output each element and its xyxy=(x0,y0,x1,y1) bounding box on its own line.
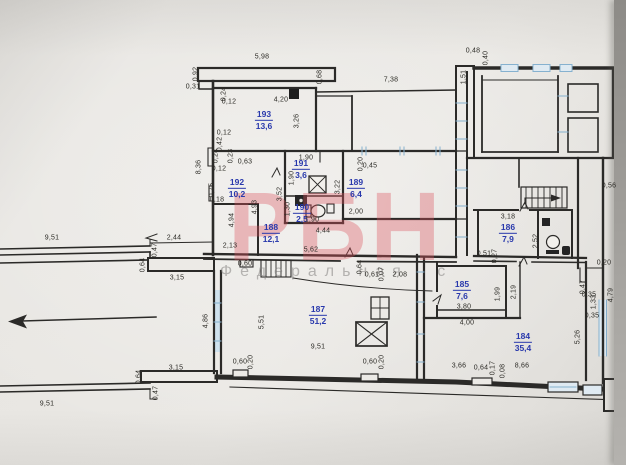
room-label-193: 19313,6 xyxy=(255,109,273,131)
dimension-label: 0,47 xyxy=(152,243,159,257)
dimension-label: 0,61 xyxy=(365,272,379,279)
dimension-label: 0,92 xyxy=(193,67,200,81)
dimension-label: 0,27 xyxy=(492,249,499,263)
dimension-label: 0,48 xyxy=(466,48,480,55)
room-label-185: 1857,6 xyxy=(453,279,471,301)
dimension-label: 4,94 xyxy=(229,213,236,227)
dimension-label: 5,98 xyxy=(255,54,269,61)
dimension-label: 0,20 xyxy=(379,355,386,369)
dimension-label: 0,17 xyxy=(490,361,497,375)
dimension-label: 5,26 xyxy=(575,330,582,344)
dimension-label: 1,30 xyxy=(285,202,292,216)
dimension-label: 0,60 xyxy=(238,261,252,268)
dimension-label: 0,31 xyxy=(186,84,200,91)
dimension-label: 1,90 xyxy=(289,171,296,185)
dimension-label: 0,45 xyxy=(363,163,377,170)
dimension-label: 9,51 xyxy=(311,344,325,351)
dimension-label: 3,22 xyxy=(335,180,342,194)
dimension-label: 0,47 xyxy=(153,386,160,400)
dimension-label: 4,00 xyxy=(460,320,474,327)
room-label-184: 18435,4 xyxy=(514,331,532,353)
dimension-label: 3,26 xyxy=(294,114,301,128)
dimension-label: 4,44 xyxy=(316,228,330,235)
room-label-189: 1896,4 xyxy=(347,177,365,199)
dimension-label: 8,66 xyxy=(515,363,529,370)
dimension-label: 0,64 xyxy=(140,258,147,272)
dimension-label: 0,20 xyxy=(597,260,611,267)
dimension-label: 9,51 xyxy=(40,401,54,408)
room-label-186: 1867,9 xyxy=(499,222,517,244)
dimension-label: 0,18 xyxy=(210,197,224,204)
dimension-label: 0,12 xyxy=(222,99,236,106)
dimension-label: 0,24 xyxy=(213,149,220,163)
dimension-label: 0,12 xyxy=(217,130,231,137)
dimension-label: 2,08 xyxy=(393,272,407,279)
dimension-label: 3,18 xyxy=(501,214,515,221)
labels-layer: 19313,619210,21913,61902,51896,418812,11… xyxy=(0,0,626,465)
dimension-label: 2,19 xyxy=(511,285,518,299)
dimension-label: 3,80 xyxy=(457,304,471,311)
dimension-label: 0,12 xyxy=(212,166,226,173)
dimension-label: 1,90 xyxy=(305,217,319,224)
dimension-label: 0,75 xyxy=(209,183,216,197)
dimension-label: 0,51 xyxy=(477,251,491,258)
dimension-label: 0,23 xyxy=(228,149,235,163)
dimension-label: 7,38 xyxy=(384,77,398,84)
dimension-label: 0,07 xyxy=(379,267,386,281)
dimension-label: 3,52 xyxy=(277,187,284,201)
dimension-label: 0,60 xyxy=(363,359,377,366)
dimension-label: 0,64 xyxy=(136,370,143,384)
dimension-label: 2,52 xyxy=(533,234,540,248)
dimension-label: 1,51 xyxy=(461,70,468,84)
dimension-label: 0,64 xyxy=(357,260,364,274)
dimension-label: 0,56 xyxy=(602,183,616,190)
dimension-label: 1,33 xyxy=(591,295,598,309)
dimension-label: 0,64 xyxy=(474,365,488,372)
dimension-label: 4,93 xyxy=(252,200,259,214)
dimension-label: 0,68 xyxy=(317,70,324,84)
dimension-label: 0,08 xyxy=(500,364,507,378)
dimension-label: 2,00 xyxy=(349,209,363,216)
dimension-label: 5,51 xyxy=(259,315,266,329)
dimension-label: 0,63 xyxy=(238,159,252,166)
dimension-label: 2,13 xyxy=(223,243,237,250)
room-label-188: 18812,1 xyxy=(262,222,280,244)
dimension-label: 1,99 xyxy=(495,287,502,301)
dimension-label: 4,20 xyxy=(274,97,288,104)
room-label-187: 18751,2 xyxy=(309,304,327,326)
dimension-label: 1,90 xyxy=(299,155,313,162)
dimension-label: 0,40 xyxy=(483,51,490,65)
dimension-label: 2,44 xyxy=(167,235,181,242)
dimension-label: 4,79 xyxy=(608,288,615,302)
dimension-label: 3,15 xyxy=(170,275,184,282)
floor-plan-photo: РБН Федеральная с 19313,619210,21913,619… xyxy=(0,0,626,465)
dimension-label: 0,60 xyxy=(233,359,247,366)
dimension-label: 3,15 xyxy=(169,365,183,372)
dimension-label: 5,62 xyxy=(304,247,318,254)
dimension-label: 0,35 xyxy=(585,313,599,320)
dimension-label: 0,20 xyxy=(248,355,255,369)
dimension-label: 3,66 xyxy=(452,363,466,370)
dimension-label: 8,36 xyxy=(196,160,203,174)
room-label-192: 19210,2 xyxy=(228,177,246,199)
dimension-label: 4,86 xyxy=(203,314,210,328)
dimension-label: 9,51 xyxy=(45,235,59,242)
